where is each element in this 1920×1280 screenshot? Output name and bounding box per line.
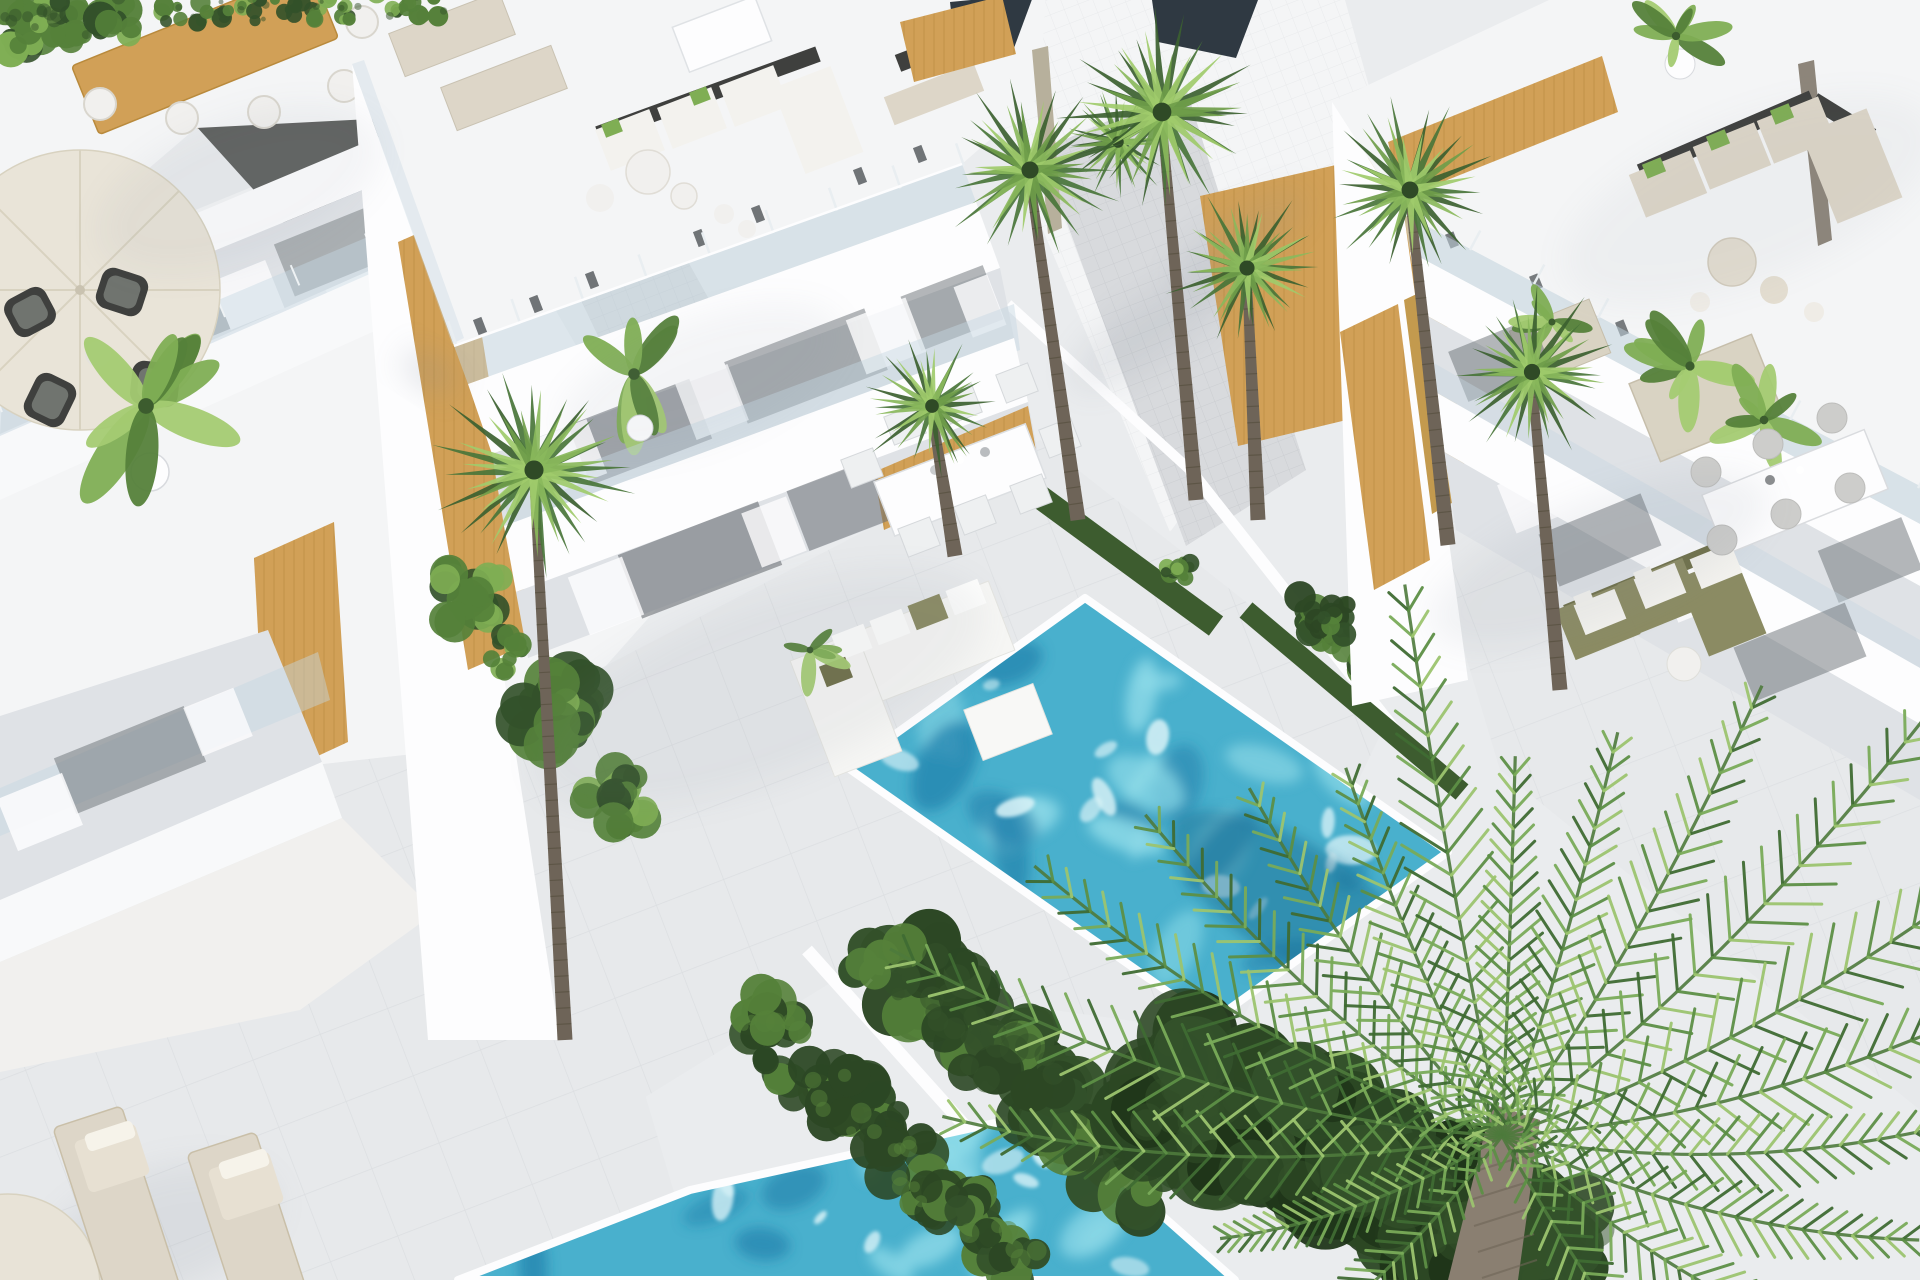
- hedge-row-west-h18: [1011, 1249, 1031, 1269]
- hedge-top-strip-h0: [237, 6, 245, 14]
- hedge-top-strip-h2: [262, 1, 270, 9]
- palm-left-ring13: [540, 688, 551, 689]
- palm-left-ring20: [546, 800, 558, 801]
- palm-left-ring18: [544, 768, 556, 769]
- hedge-top-strip-h3: [386, 12, 394, 20]
- hedge-row-east-h12: [960, 1056, 979, 1075]
- cv-coffee-table-2: [671, 183, 697, 209]
- hedge-row-east-h0: [891, 987, 904, 1000]
- hedge-top-strip-h9: [339, 5, 345, 11]
- hedge-row-west-h13: [888, 1143, 902, 1157]
- palm-tall-3-ring12: [1249, 471, 1263, 472]
- rv-table-item-1: [1765, 475, 1775, 485]
- hedge-row-west-b68: [752, 1046, 777, 1071]
- rv-table-item-2: [1796, 466, 1804, 474]
- palm-left-ring8: [536, 608, 546, 609]
- hedge-row-west-h9: [838, 1069, 851, 1082]
- hedge-top-strip-b48: [200, 5, 214, 19]
- bush-6-b11: [1171, 562, 1184, 575]
- palm-left-ring32: [555, 992, 569, 993]
- cv-stool-1: [714, 204, 734, 224]
- hedge-top-strip-b46: [160, 15, 172, 27]
- palm-left-ring6: [534, 576, 544, 577]
- hedge-top-strip-b47: [223, 5, 234, 16]
- palm-tall-3-ring9: [1247, 422, 1260, 423]
- palm-left-ring7: [535, 592, 545, 593]
- hedge-top-strip-h6: [312, 3, 319, 10]
- palm-left-ring9: [537, 624, 548, 625]
- hedge-row-west-h16: [903, 1136, 917, 1150]
- palm-left-ring29: [553, 944, 567, 945]
- hedge-top-corner-h9: [0, 12, 10, 22]
- hedge-foreground-h10: [1130, 1103, 1164, 1137]
- palm-tall-2-core: [1153, 103, 1172, 122]
- roof-parasol-pole: [75, 285, 85, 295]
- hedge-row-east-b90: [859, 957, 891, 989]
- hedge-top-corner-h0: [31, 23, 39, 31]
- table-item-3: [980, 447, 990, 457]
- hedge-top-strip-h1: [440, 7, 447, 14]
- hedge-top-strip-h14: [354, 3, 361, 10]
- hedge-top-corner-b39: [95, 10, 123, 38]
- palm-left-ring23: [548, 848, 561, 849]
- palm-left-ring24: [549, 864, 562, 865]
- scene-svg: [0, 0, 1920, 1280]
- hedge-top-strip-b24: [173, 12, 187, 26]
- palm-left-ring17: [543, 752, 555, 753]
- cv-stool-2: [738, 220, 756, 238]
- palm-left-ring27: [551, 912, 565, 913]
- hedge-top-corner-h11: [22, 11, 33, 22]
- palm-left-ring16: [542, 736, 554, 737]
- hedge-row-west-h25: [783, 1014, 795, 1026]
- rv-chair-6: [1835, 473, 1865, 503]
- palm-left-ring15: [542, 720, 554, 721]
- hedge-row-west-h6: [867, 1124, 882, 1139]
- hedge-top-corner-h7: [82, 30, 91, 39]
- hedge-row-west-h17: [754, 1012, 774, 1032]
- hedge-row-west-h24: [816, 1102, 831, 1117]
- cv-side-table: [586, 184, 614, 212]
- hedge-row-west-h11: [991, 1219, 1005, 1233]
- cv-coffee-table-1: [626, 150, 670, 194]
- rv-planter-plant-1-core: [1685, 361, 1694, 370]
- palm-left-ring11: [538, 656, 549, 657]
- hedge-row-west-h22: [892, 1170, 908, 1186]
- hedge-row-west-h23: [959, 1223, 979, 1243]
- palm-left-ring31: [554, 976, 568, 977]
- palm-right-1-core: [1402, 182, 1419, 199]
- banana-plant-roof-core: [138, 398, 154, 414]
- rv-chair-2: [1753, 429, 1783, 459]
- palm-tall-3-ring14: [1250, 503, 1265, 504]
- rv-chair-5: [1771, 499, 1801, 529]
- rope-chair-2: [166, 102, 198, 134]
- palm-left-ring14: [541, 704, 552, 705]
- rv-planter-plant-3-core: [1548, 318, 1555, 325]
- palm-right-2-core: [1524, 364, 1540, 380]
- bush-1-b19: [467, 586, 488, 607]
- hedge-top-strip-b36: [306, 11, 322, 27]
- hedge-top-strip-h13: [175, 4, 182, 11]
- palm-left-ring22: [547, 832, 560, 833]
- rv-potted-plant-core: [1672, 32, 1680, 40]
- hedge-row-west-h8: [851, 1103, 872, 1124]
- palm-left-ring12: [539, 672, 550, 673]
- bush-4-b14: [507, 632, 532, 657]
- palm-left-ring5: [534, 560, 544, 561]
- palm-tall-3-ring8: [1247, 406, 1259, 407]
- hedge-top-strip-h15: [261, 17, 266, 22]
- palm-left-ring25: [550, 880, 563, 881]
- hedge-pool-corner-b29: [1284, 581, 1316, 613]
- palm-small-front-core: [925, 399, 939, 413]
- rope-chair-1: [84, 88, 116, 120]
- hedge-top-strip-h5: [306, 3, 312, 9]
- hedge-row-west-h21: [739, 1021, 749, 1031]
- bush-1-b22: [429, 601, 465, 637]
- hedge-row-west-h0: [805, 1072, 822, 1089]
- hedge-top-strip-b42: [342, 12, 355, 25]
- palm-tall-3-core: [1239, 260, 1254, 275]
- palm-tall-3-ring11: [1248, 455, 1261, 456]
- bush-5-b11: [1339, 596, 1356, 613]
- hedge-row-west-b88: [944, 1195, 975, 1226]
- palm-tall-3-ring6: [1246, 374, 1257, 375]
- hedge-row-west-h4: [915, 1195, 927, 1207]
- palm-tall-3-ring13: [1249, 487, 1263, 488]
- palm-left-ring19: [545, 784, 557, 785]
- palm-left-core: [524, 460, 543, 479]
- palm-left-ring10: [538, 640, 549, 641]
- table-item-2: [956, 456, 964, 464]
- hedge-top-strip-h8: [190, 14, 196, 20]
- rv-side-table: [1667, 647, 1701, 681]
- rv-chair-3: [1817, 403, 1847, 433]
- bush-6-b10: [1161, 567, 1171, 577]
- palm-left-ring26: [550, 896, 563, 897]
- hedge-row-east-h13: [943, 1017, 965, 1039]
- bush-5-b14: [1317, 611, 1330, 624]
- bush-1-b20: [430, 564, 460, 594]
- hedge-top-corner-h8: [9, 9, 22, 22]
- palm-tall-3-ring10: [1248, 439, 1261, 440]
- palm-tall-3-ring7: [1246, 390, 1258, 391]
- palm-left-ring33: [556, 1008, 571, 1009]
- hedge-row-east-h23: [925, 1004, 941, 1020]
- hedge-row-west-b78: [740, 974, 782, 1016]
- hedge-row-west-h19: [909, 1181, 920, 1192]
- hedge-top-corner-b34: [120, 17, 141, 38]
- scene-root: [0, 0, 1920, 1280]
- rv-planter-plant-2-core: [1760, 416, 1769, 425]
- hedge-row-west-h3: [846, 1126, 856, 1136]
- render-viewport: Aerial 3D architectural rendering of a m…: [0, 0, 1920, 1280]
- palm-tall-1-core: [1021, 161, 1038, 178]
- palm-left-ring34: [557, 1024, 572, 1025]
- palm-left-ring21: [546, 816, 559, 817]
- rv-stool-2: [1804, 302, 1824, 322]
- bush-4-b5: [483, 650, 500, 667]
- palm-left-ring28: [552, 928, 566, 929]
- palm-left-ring30: [554, 960, 568, 961]
- hedge-top-corner-h10: [47, 13, 62, 28]
